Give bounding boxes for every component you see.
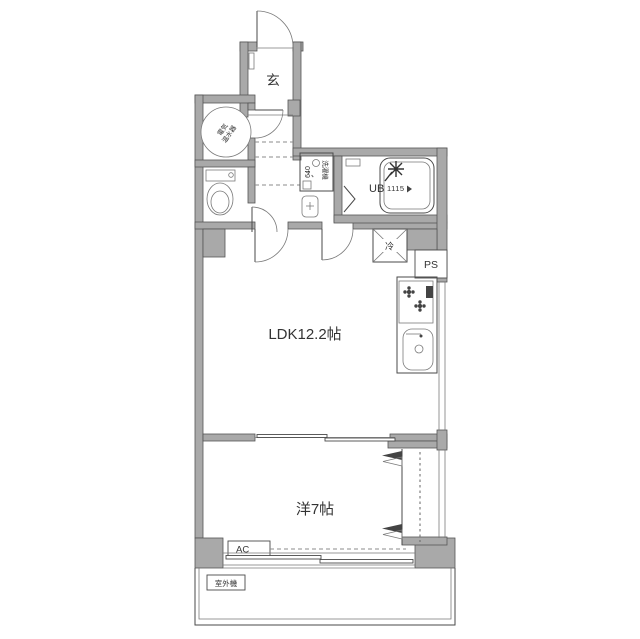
sliding-panel [257,435,327,438]
wall-segment [240,42,248,117]
washer-label: 洗濯機 [321,160,330,180]
washer-size-label: 640 [305,166,312,178]
toilet-tank [206,170,235,181]
wall-segment [402,537,447,545]
entrance-label: 玄 [266,72,280,88]
wall-segment [407,229,437,250]
entrance-door-arc [257,11,293,47]
wall-pillar [203,229,225,257]
ldk-door-arc [255,229,288,262]
wall-segment [288,100,300,116]
ldk-door-arc [322,229,353,260]
entrance-area: 玄 [248,11,300,185]
wall-segment [203,434,255,441]
sliding-partition [255,435,395,442]
shoe-box [249,53,254,69]
unit-bath-label: UB [369,183,384,195]
wall-segment [195,95,255,103]
toilet-door-arc [252,207,277,232]
balcony: 室外機 [195,568,455,625]
washer-drain-square [303,181,311,189]
refrigerator-label: 冷 [385,241,394,252]
washer-area: 640 洗濯機 [300,153,333,217]
toilet-flush-button [229,173,234,178]
air-conditioner-label: AC [236,545,249,556]
washer-tap [313,160,320,167]
water-heater-door-arc [255,110,283,138]
water-heater-room: 電気 温水器 [201,107,283,157]
ldk-label: LDK12.2帖 [268,326,341,343]
refrigerator-space: 冷 [373,229,407,262]
wall-segment [334,156,342,222]
window [439,282,445,430]
wall-segment [248,167,255,203]
floor-plan-page: 玄 電気 温水器 640 洗濯機 [0,0,640,639]
wall-segment [248,103,255,110]
closet-fold-marker [382,451,402,460]
wall-pillar [195,538,223,568]
window-sliding-panel [320,560,413,564]
stove-grill [426,286,433,298]
wall-segment [195,160,255,167]
bath-vent [346,159,360,166]
ldk-room: LDK12.2帖 [255,229,353,343]
wall-segment-top-exterior [293,148,447,156]
windows [439,282,445,538]
wall-segment [195,222,255,229]
bath-folding-door [344,186,355,212]
kitchen [397,277,437,373]
wall-segment [334,215,447,223]
wall-segment [288,222,322,229]
sink-faucet-handle [420,335,423,338]
pipe-space: PS [415,250,447,278]
toilet-bowl [207,183,233,215]
closet-fold-marker [382,524,402,533]
floor-plan-drawing: 玄 電気 温水器 640 洗濯機 [0,0,640,639]
bedroom-label: 洋7帖 [296,501,334,518]
window [439,450,445,538]
pipe-space-label: PS [424,259,438,271]
window-sliding-panel [226,556,321,560]
unit-bath-size-label: 1115 [387,184,405,193]
stove-burner-icon [403,286,414,297]
water-heater [201,107,251,157]
unit-bath: UB 1115 [344,158,434,213]
outdoor-unit-label: 室外機 [215,578,238,588]
wall-segment [437,430,447,450]
sliding-panel [325,438,395,441]
stove-burner-icon [414,300,425,311]
shower-icon [385,161,404,181]
bedroom: 洋7帖 AC [223,449,420,565]
kitchen-sink [403,329,433,370]
door-swing-marker [407,186,412,193]
